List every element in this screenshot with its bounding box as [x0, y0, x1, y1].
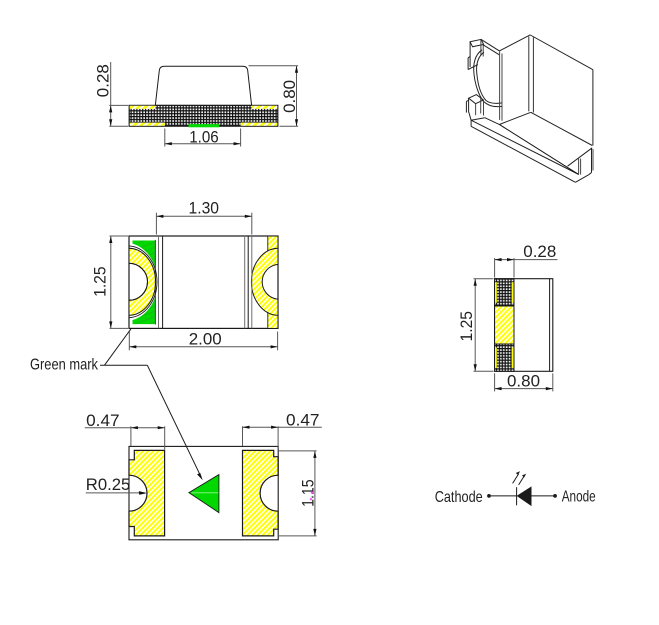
svg-text:0.28: 0.28: [93, 64, 112, 97]
svg-text:0.80: 0.80: [507, 372, 540, 391]
svg-text:Green mark: Green mark: [30, 357, 99, 374]
svg-text:1.30: 1.30: [189, 198, 220, 217]
svg-text:0.47: 0.47: [286, 410, 320, 429]
svg-text:Cathode: Cathode: [435, 489, 483, 506]
svg-text:1.25: 1.25: [457, 311, 476, 342]
svg-text:1.15: 1.15: [298, 479, 317, 507]
svg-text:2.00: 2.00: [189, 329, 222, 348]
svg-text:R0.25: R0.25: [86, 475, 131, 494]
svg-text:0.80: 0.80: [280, 80, 299, 113]
svg-text:0.47: 0.47: [86, 411, 120, 430]
svg-text:1.25: 1.25: [91, 266, 110, 297]
svg-text:1.06: 1.06: [189, 128, 219, 147]
svg-text:Anode: Anode: [562, 489, 596, 506]
svg-text:0.28: 0.28: [523, 242, 556, 261]
